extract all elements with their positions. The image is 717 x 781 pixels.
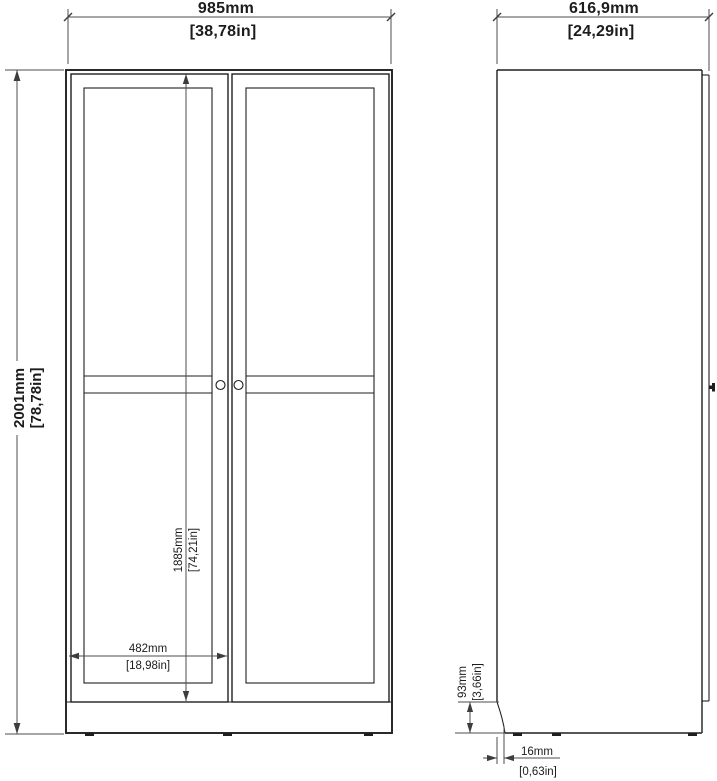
side-knob (709, 383, 715, 392)
front-cabinet-outline (66, 70, 392, 733)
front-height-mm-label: 2001mm (11, 368, 28, 428)
front-view (66, 70, 392, 736)
right-door-knob (234, 381, 243, 390)
arrow-down-icon (14, 723, 21, 734)
front-left-door (71, 74, 228, 702)
front-right-door-inner-panel (246, 88, 374, 683)
wardrobe-technical-drawing: 985mm [38,78in] 616,9mm [24,29in] 2001mm… (0, 0, 717, 781)
plinth-height-in-label: [3,66in] (472, 663, 484, 701)
side-depth-in-label: [24,29in] (568, 23, 635, 40)
front-left-door-inner-panel (84, 88, 212, 683)
arrow-up-icon (183, 74, 189, 84)
dim-front-width: 985mm [38,78in] (64, 0, 395, 64)
front-width-mm-label: 985mm (198, 0, 254, 17)
door-width-mm-label: 482mm (129, 643, 167, 655)
door-width-in-label: [18,98in] (126, 660, 170, 672)
front-height-label-group: 2001mm [78,78in] (9, 361, 45, 435)
side-view (497, 70, 715, 736)
door-height-in-label: [74,21in] (188, 528, 200, 572)
door-height-mm-label: 1885mm (173, 528, 185, 573)
side-foot-rear (513, 733, 522, 736)
side-foot-mid (552, 733, 561, 736)
dim-door-width: 482mm [18,98in] (69, 643, 227, 672)
front-foot-right (364, 733, 373, 736)
front-right-door (232, 74, 389, 702)
plinth-height-mm-label: 93mm (457, 666, 469, 698)
arrow-down-icon (183, 691, 189, 701)
plinth-height-label-group: 93mm [3,66in] (457, 663, 484, 701)
arrow-right-icon (217, 653, 227, 659)
drawing-canvas: 985mm [38,78in] 616,9mm [24,29in] 2001mm… (0, 0, 717, 781)
arrow-left-icon (504, 755, 514, 761)
front-height-in-label: [78,78in] (28, 368, 45, 429)
arrow-up-icon (467, 702, 473, 712)
front-foot-center (223, 733, 232, 736)
arrow-right-icon (487, 755, 497, 761)
base-thickness-in-label: [0,63in] (519, 766, 557, 778)
side-foot-front (688, 733, 697, 736)
base-thickness-mm-label: 16mm (521, 746, 553, 758)
side-depth-mm-label: 616,9mm (569, 0, 639, 17)
front-width-in-label: [38,78in] (190, 23, 257, 40)
arrow-up-icon (14, 70, 21, 81)
arrow-down-icon (467, 723, 473, 733)
dim-front-height: 2001mm [78,78in] (5, 70, 64, 734)
dim-door-height: 1885mm [74,21in] (173, 74, 200, 701)
left-door-knob (216, 381, 225, 390)
front-foot-left (85, 733, 94, 736)
dim-side-depth: 616,9mm [24,29in] (493, 0, 713, 71)
